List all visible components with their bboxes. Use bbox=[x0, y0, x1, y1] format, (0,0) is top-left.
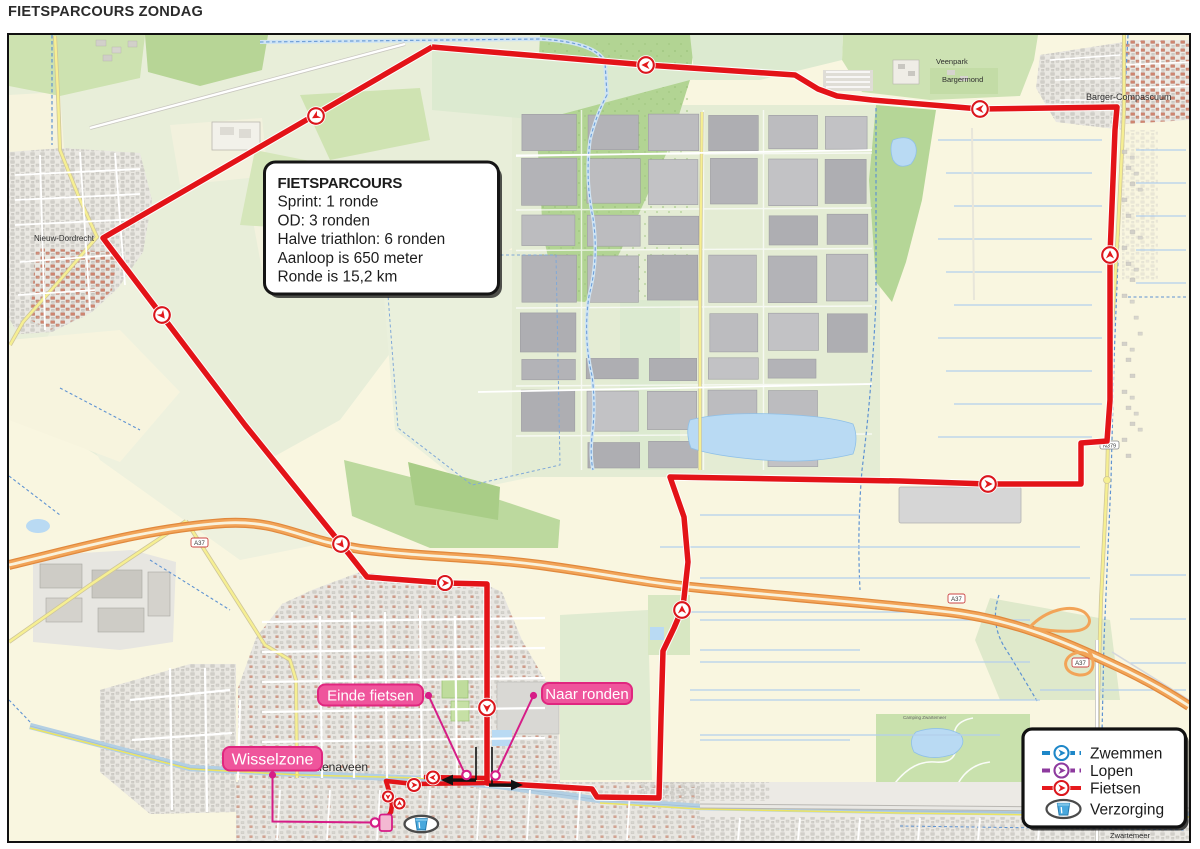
svg-text:Verzorging: Verzorging bbox=[1090, 802, 1164, 819]
svg-text:A37: A37 bbox=[951, 597, 962, 603]
svg-text:Barger-Compascuum: Barger-Compascuum bbox=[1086, 92, 1172, 102]
svg-text:Fietsen: Fietsen bbox=[1090, 781, 1141, 798]
svg-text:Veenpark: Veenpark bbox=[936, 57, 968, 66]
svg-text:Lopen: Lopen bbox=[1090, 763, 1133, 780]
svg-text:Sprint: 1 ronde: Sprint: 1 ronde bbox=[278, 194, 379, 211]
svg-text:FIETSPARCOURS: FIETSPARCOURS bbox=[278, 175, 403, 192]
svg-text:Wisselzone: Wisselzone bbox=[232, 752, 314, 769]
svg-text:Einde fietsen: Einde fietsen bbox=[327, 687, 414, 704]
svg-text:Bargermond: Bargermond bbox=[942, 75, 983, 84]
svg-text:Ronde is 15,2 km: Ronde is 15,2 km bbox=[278, 269, 398, 286]
svg-text:Nieuw-Dordrecht: Nieuw-Dordrecht bbox=[34, 234, 95, 243]
svg-text:A37: A37 bbox=[1075, 661, 1086, 667]
svg-text:Aanloop is 650 meter: Aanloop is 650 meter bbox=[278, 250, 423, 267]
svg-text:Halve triathlon: 6 ronden: Halve triathlon: 6 ronden bbox=[278, 231, 446, 248]
svg-text:Zwartemeer: Zwartemeer bbox=[1110, 831, 1151, 840]
svg-text:OD: 3 ronden: OD: 3 ronden bbox=[278, 212, 370, 229]
svg-text:Zwemmen: Zwemmen bbox=[1090, 746, 1162, 763]
svg-text:Camping Zwartemeer: Camping Zwartemeer bbox=[903, 715, 947, 720]
svg-text:Naar ronden: Naar ronden bbox=[545, 686, 628, 703]
svg-text:A37: A37 bbox=[194, 541, 205, 547]
